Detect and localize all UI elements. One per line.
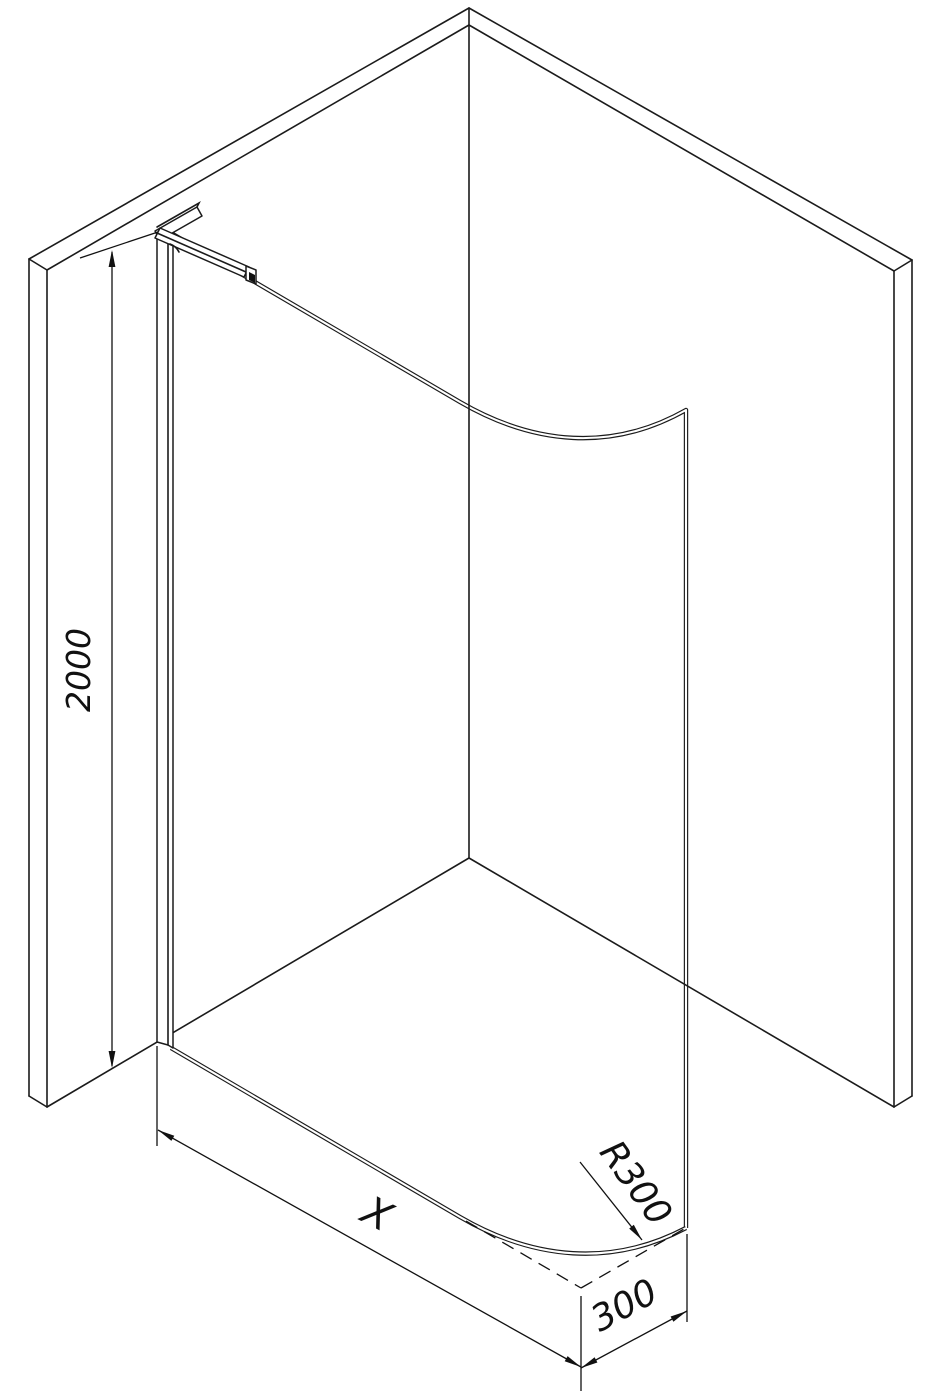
- radius-dimension-label: R300: [591, 1133, 679, 1233]
- technical-drawing-page: 2000 X 300 R300: [0, 0, 939, 1391]
- depth-arrowhead-right: [671, 1311, 687, 1322]
- isometric-drawing: 2000 X 300 R300: [0, 0, 939, 1391]
- width-arrowhead-right: [565, 1356, 581, 1367]
- dimension-height-2000: 2000: [59, 232, 158, 1068]
- height-extension-line: [80, 232, 158, 258]
- wall-right-top-inner-edge: [469, 25, 894, 271]
- dimension-depth-300: 300: [466, 1221, 687, 1391]
- radius-arrowhead: [629, 1225, 642, 1240]
- height-arrowhead-top: [109, 250, 116, 267]
- dimension-width-x: X: [157, 1046, 581, 1367]
- wall-mounting-profile: [157, 229, 173, 1048]
- profile-body: [157, 229, 173, 1048]
- floor-edge-left: [47, 858, 469, 1107]
- height-arrowhead-bottom: [109, 1051, 116, 1068]
- width-dimension-label: X: [352, 1187, 401, 1242]
- wall-left: [29, 8, 469, 1107]
- wall-right-top-outer-edge: [469, 8, 912, 260]
- wall-right-end-top-edge: [894, 260, 912, 271]
- wall-left-end-top-edge: [29, 259, 47, 270]
- wall-right-end-bottom-edge: [894, 1096, 912, 1107]
- glass-panel: [171, 233, 686, 1254]
- depth-arrowhead-left: [581, 1357, 597, 1368]
- width-arrowhead-left: [158, 1130, 174, 1141]
- height-dimension-label: 2000: [59, 628, 98, 712]
- wall-left-top-outer-edge: [29, 8, 469, 259]
- dimension-radius-r300: R300: [580, 1133, 679, 1240]
- wall-left-top-inner-edge: [47, 25, 469, 270]
- floor-edge-right: [469, 858, 894, 1107]
- wall-right: [469, 8, 912, 1107]
- glass-top-and-right-edge: [171, 233, 686, 1228]
- wall-left-end-bottom-edge: [29, 1096, 47, 1107]
